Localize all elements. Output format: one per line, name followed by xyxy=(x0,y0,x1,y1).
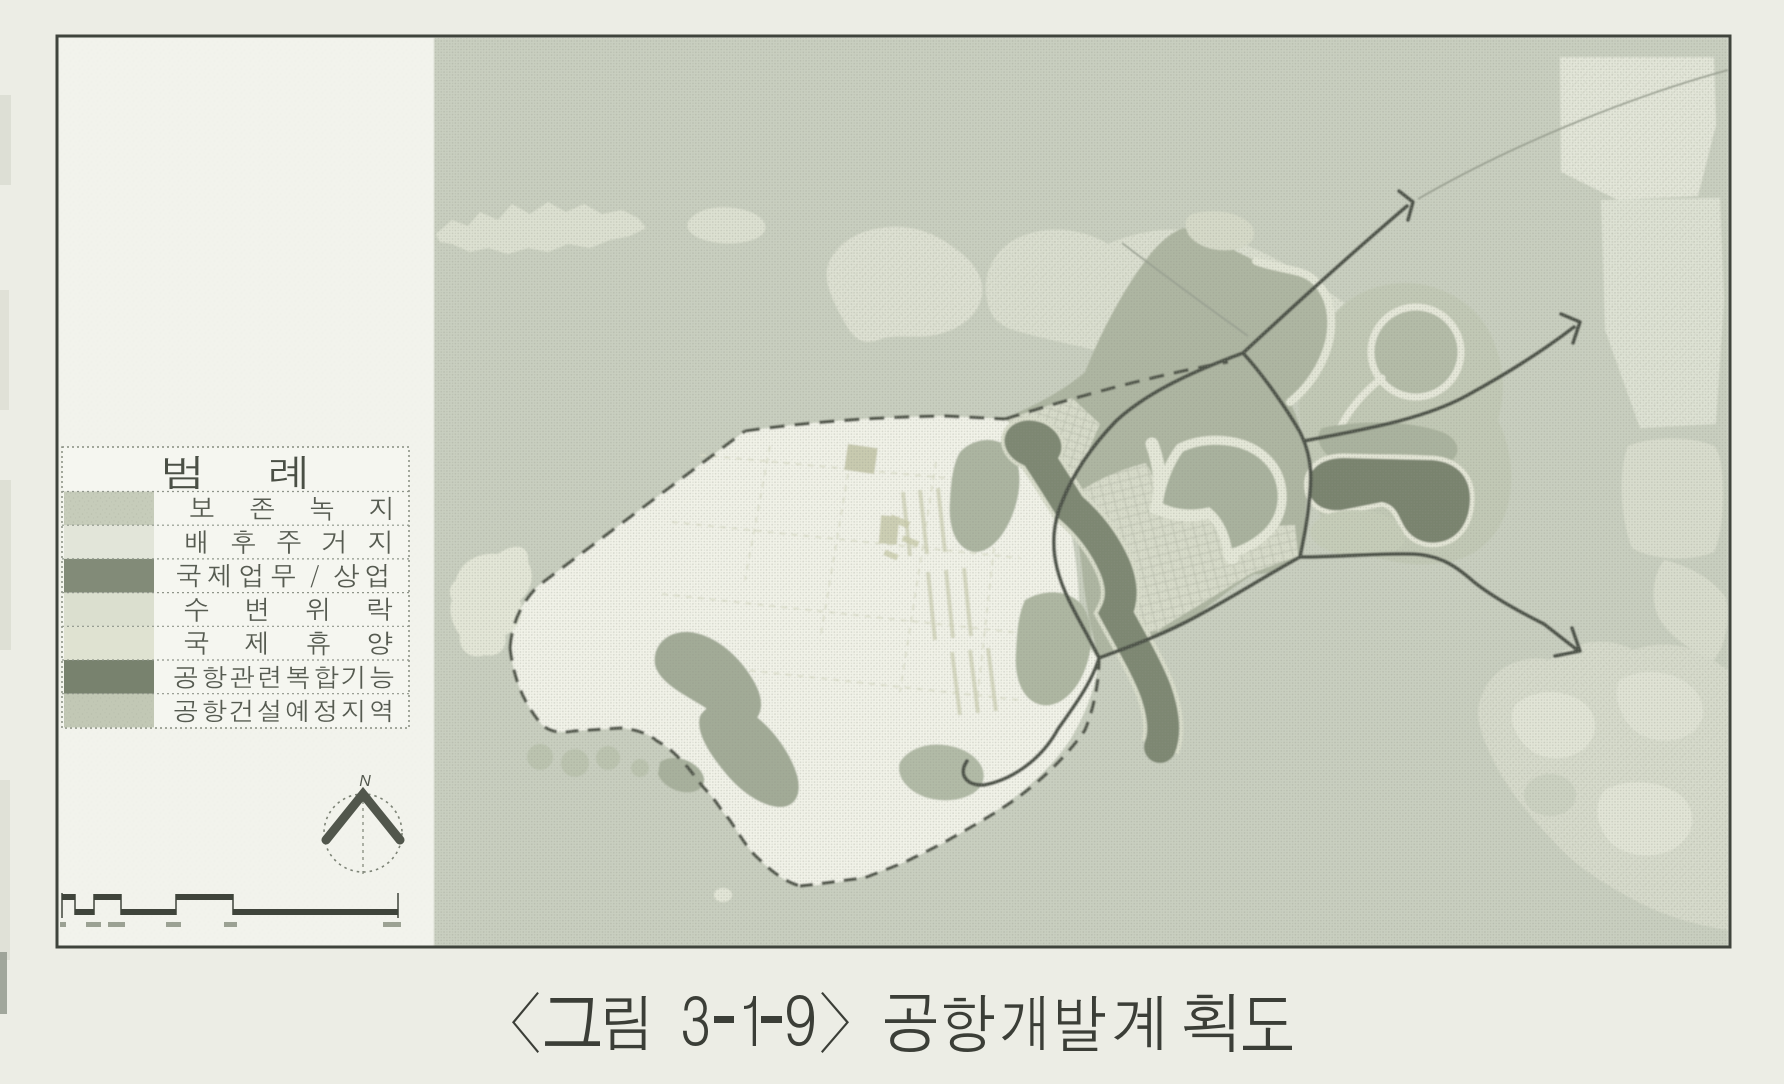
svg-text:N: N xyxy=(359,773,371,790)
